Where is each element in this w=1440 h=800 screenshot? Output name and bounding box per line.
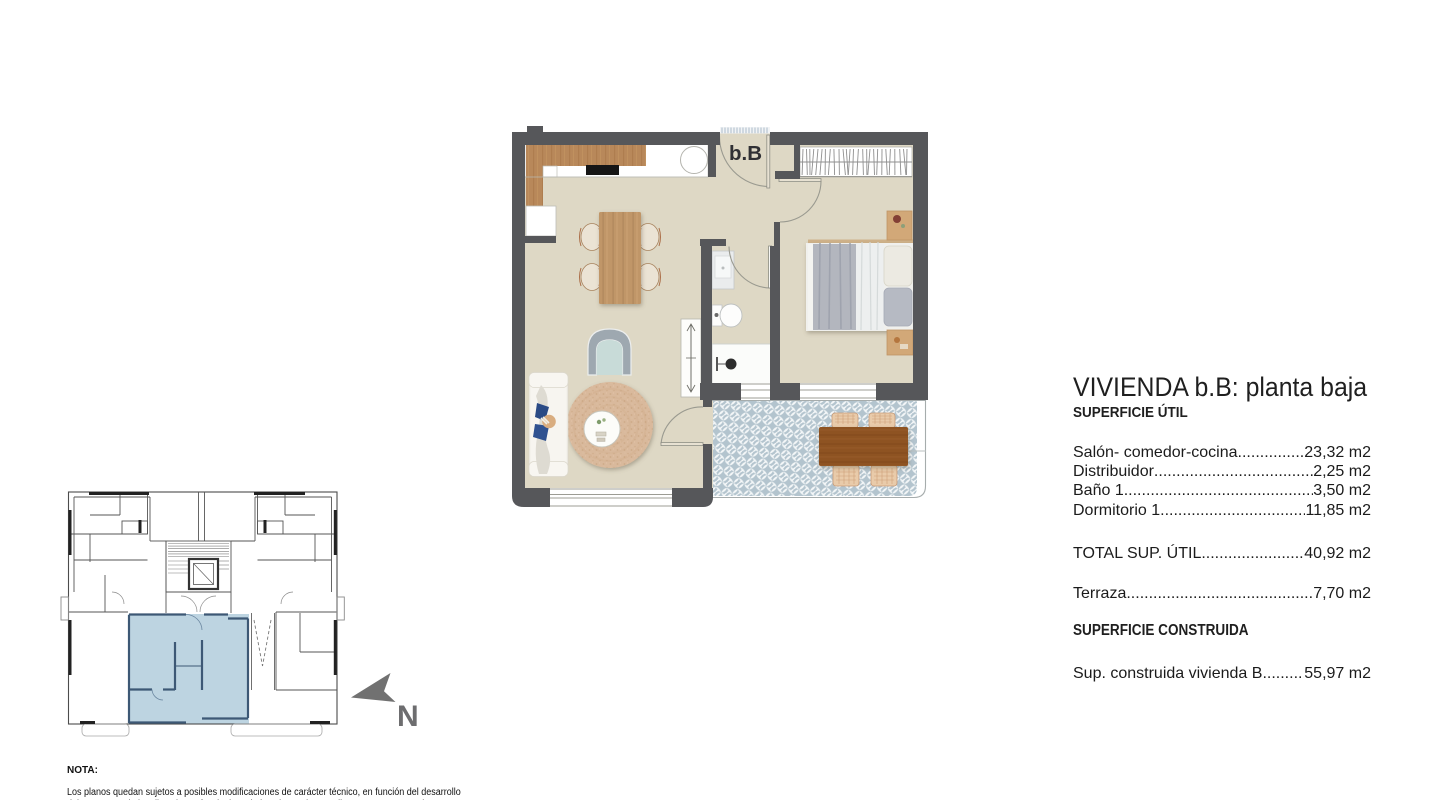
svg-text:b.B: b.B — [729, 142, 762, 165]
svg-text:N: N — [397, 700, 419, 733]
